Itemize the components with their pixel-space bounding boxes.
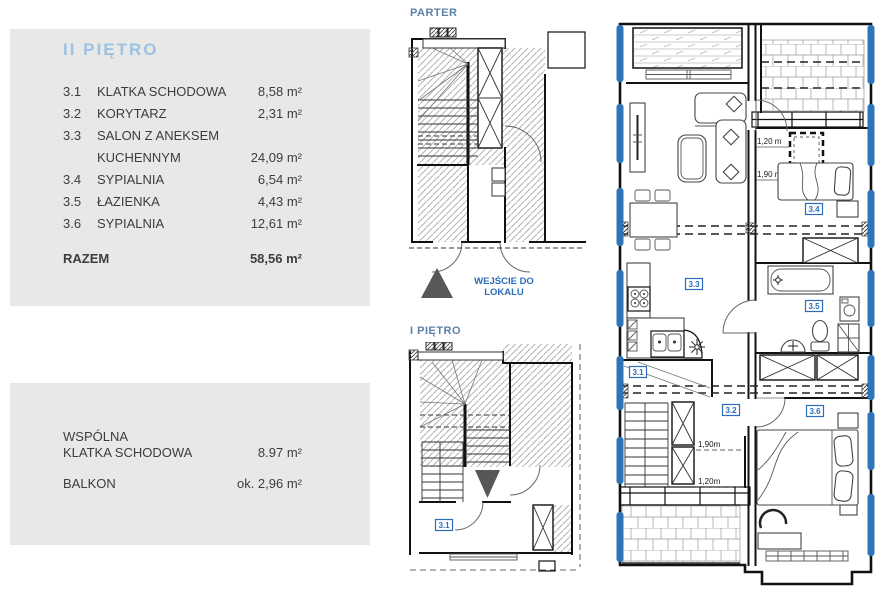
entrance-arrow-icon bbox=[421, 268, 453, 298]
floor-plan-sheet: II PIĘTRO 3.1 KLATKA SCHODOWA 8,58 m² 3.… bbox=[0, 0, 878, 595]
room-tag-3-2: 3.2 bbox=[723, 405, 740, 416]
first-floor-title: I PIĘTRO bbox=[410, 325, 461, 337]
first-floor-wardrobe bbox=[533, 505, 553, 550]
kitchen-counter bbox=[627, 263, 702, 358]
stair-direction-arrow bbox=[475, 470, 500, 498]
common-row: WSPÓLNA KLATKA SCHODOWA 8.97 m² bbox=[63, 429, 302, 461]
svg-text:1,20m: 1,20m bbox=[698, 477, 721, 486]
room-tag-3-3: 3.3 bbox=[686, 279, 703, 290]
room-tag-3-1-first-floor: 3.1 bbox=[436, 520, 453, 531]
room-tag-3-6: 3.6 bbox=[807, 406, 824, 417]
legend-row: 3.4 SYPIALNIA 6,54 m² bbox=[63, 169, 302, 191]
legend-row: 3.2 KORYTARZ 2,31 m² bbox=[63, 103, 302, 125]
tv-unit bbox=[630, 103, 645, 172]
legend-rows: 3.1 KLATKA SCHODOWA 8,58 m² 3.2 KORYTARZ… bbox=[63, 81, 302, 270]
terrace-railing bbox=[752, 112, 863, 127]
entrance-label: WEJŚCIE DO LOKALU bbox=[455, 277, 553, 298]
parter-title: PARTER bbox=[410, 7, 457, 19]
balcony-railing bbox=[620, 487, 750, 505]
svg-text:3.6: 3.6 bbox=[809, 407, 821, 416]
svg-text:3.5: 3.5 bbox=[808, 302, 820, 311]
svg-text:3.3: 3.3 bbox=[688, 280, 700, 289]
staircase bbox=[624, 362, 710, 487]
legend-row: 3.1 KLATKA SCHODOWA 8,58 m² bbox=[63, 81, 302, 103]
common-rows: WSPÓLNA KLATKA SCHODOWA 8.97 m² BALKON o… bbox=[63, 429, 302, 492]
common-row: BALKON ok. 2,96 m² bbox=[63, 476, 302, 492]
bathroom bbox=[760, 266, 859, 380]
first-floor-radiator bbox=[450, 554, 517, 560]
first-floor-plan: 3.1 bbox=[407, 342, 587, 576]
svg-text:1,90m: 1,90m bbox=[698, 440, 721, 449]
common-areas-panel: WSPÓLNA KLATKA SCHODOWA 8.97 m² BALKON o… bbox=[10, 383, 370, 545]
legend-row: 3.6 SYPIALNIA 12,61 m² bbox=[63, 213, 302, 235]
svg-text:3.1: 3.1 bbox=[632, 368, 644, 377]
legend-panel: II PIĘTRO 3.1 KLATKA SCHODOWA 8,58 m² 3.… bbox=[10, 29, 370, 306]
ceiling-lamp-icon bbox=[689, 339, 705, 355]
coffee-table bbox=[678, 135, 706, 182]
svg-text:3.1: 3.1 bbox=[438, 521, 450, 530]
parter-floor-plan bbox=[407, 26, 587, 274]
legend-row: KUCHENNYM 24,09 m² bbox=[63, 147, 302, 169]
main-floor-plan: 1,90m 1,20m 1,20 m 1,90 m bbox=[612, 0, 878, 595]
room-tag-3-1: 3.1 bbox=[630, 367, 647, 378]
svg-text:3.2: 3.2 bbox=[725, 406, 737, 415]
bedroom-small: 1,20 m 1,90 m bbox=[756, 133, 858, 263]
dining-table bbox=[630, 190, 677, 250]
svg-text:3.4: 3.4 bbox=[808, 205, 820, 214]
legend-total-row: RAZEM 58,56 m² bbox=[63, 248, 302, 270]
legend-title: II PIĘTRO bbox=[10, 29, 370, 60]
room-tag-3-5: 3.5 bbox=[806, 301, 823, 312]
corridor-dimensions: 1,90m 1,20m bbox=[696, 440, 745, 487]
legend-row: 3.3 SALON Z ANEKSEM bbox=[63, 125, 302, 147]
parter-shelves bbox=[492, 168, 505, 196]
planter-radiator-top bbox=[646, 70, 731, 79]
bedroom-large bbox=[757, 413, 858, 561]
svg-text:1,20 m: 1,20 m bbox=[757, 137, 782, 146]
room-tag-3-4: 3.4 bbox=[806, 204, 823, 215]
legend-row: 3.5 ŁAZIENKA 4,43 m² bbox=[63, 191, 302, 213]
